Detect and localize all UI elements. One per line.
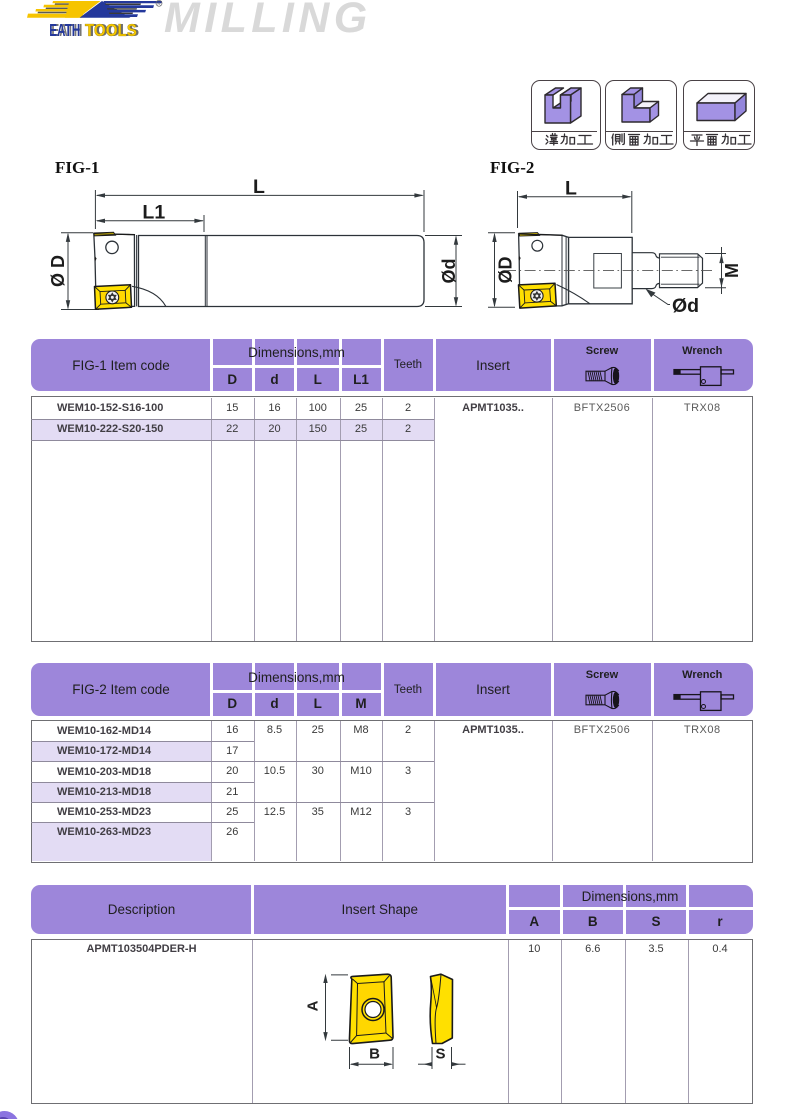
- svg-text:EATH: EATH: [49, 20, 80, 40]
- svg-text:L: L: [565, 178, 577, 200]
- svg-text:Ø D: Ø D: [48, 255, 68, 287]
- svg-text:TOOLS: TOOLS: [85, 20, 137, 40]
- svg-text:ØD: ØD: [496, 256, 516, 283]
- svg-text:Ød: Ød: [439, 259, 459, 284]
- svg-text:A: A: [305, 1000, 322, 1011]
- svg-text:S: S: [435, 1046, 445, 1063]
- svg-text:Ød: Ød: [672, 295, 699, 317]
- svg-text:M: M: [722, 263, 742, 278]
- svg-text:L1: L1: [142, 201, 165, 223]
- svg-text:B: B: [369, 1046, 380, 1063]
- svg-text:L: L: [253, 176, 265, 198]
